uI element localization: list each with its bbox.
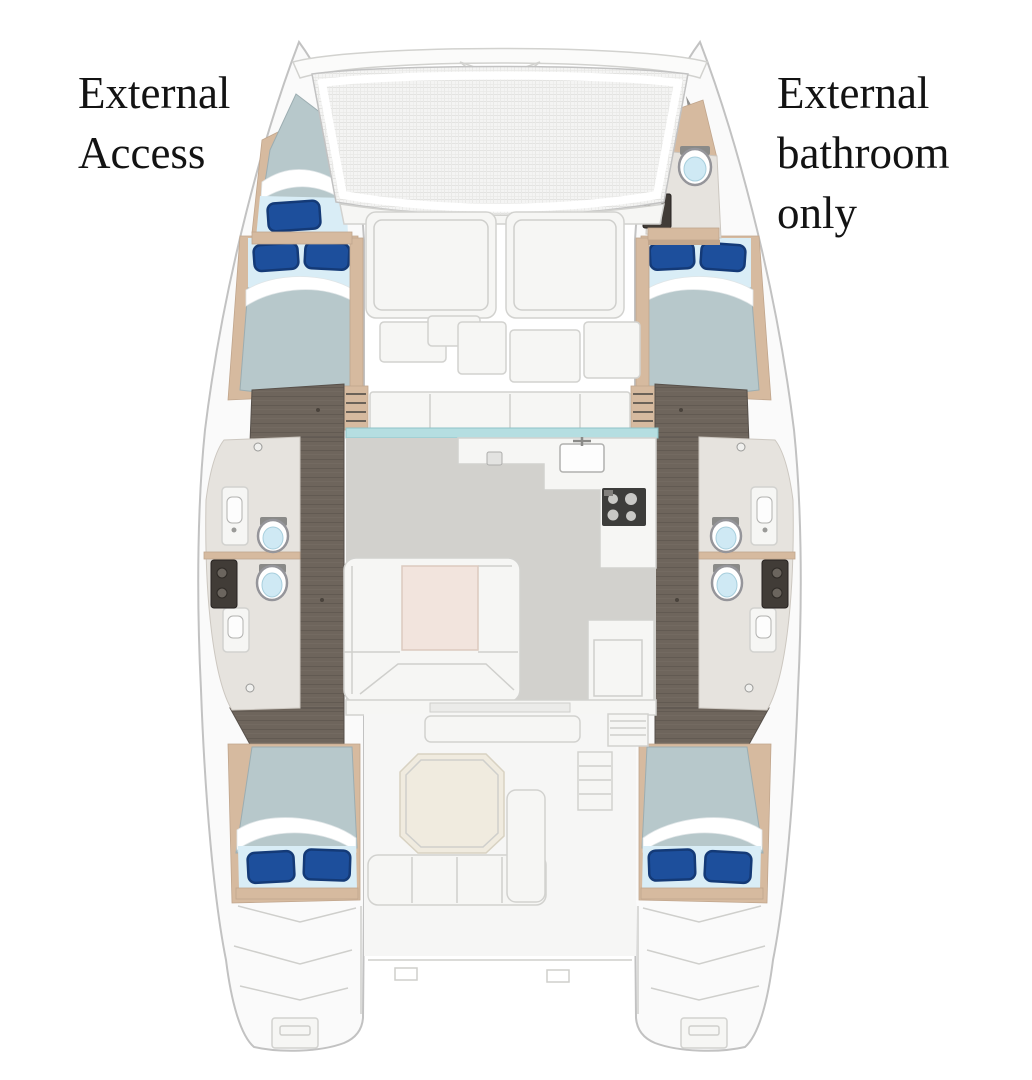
galley-hatch (487, 452, 502, 465)
annotation-line: External (78, 68, 230, 118)
saloon-aft-door (346, 700, 656, 715)
saloon-front-window (346, 428, 658, 438)
cockpit-forward-bench (425, 716, 580, 742)
floorplan-figure: External Access External bathroom only (0, 0, 1032, 1080)
annotation-line: bathroom (777, 128, 949, 178)
annotation-external-access: External Access (78, 68, 230, 178)
transom-latch (547, 970, 569, 982)
trampoline-mesh (312, 67, 688, 216)
cockpit-side-bench (507, 790, 545, 902)
annotation-external-bathroom-only: External bathroom only (777, 68, 949, 238)
foredeck (340, 204, 664, 430)
pillow-icon (267, 200, 321, 232)
toilet-icon (679, 146, 711, 185)
annotation-line: Access (78, 128, 205, 178)
annotation-line: only (777, 188, 858, 238)
transom-latch (395, 968, 417, 980)
saloon (344, 428, 658, 715)
deck-locker (458, 322, 506, 374)
saloon-sofa (344, 558, 520, 702)
catamaran-layout-diagram: External Access External bathroom only (0, 0, 1032, 1080)
stove-icon (602, 488, 646, 526)
galley-cabinet (588, 620, 654, 704)
trampoline (312, 67, 688, 216)
annotation-line: External (777, 68, 929, 118)
cockpit-table (400, 754, 504, 853)
cockpit (364, 714, 648, 982)
saloon-table (402, 566, 478, 650)
